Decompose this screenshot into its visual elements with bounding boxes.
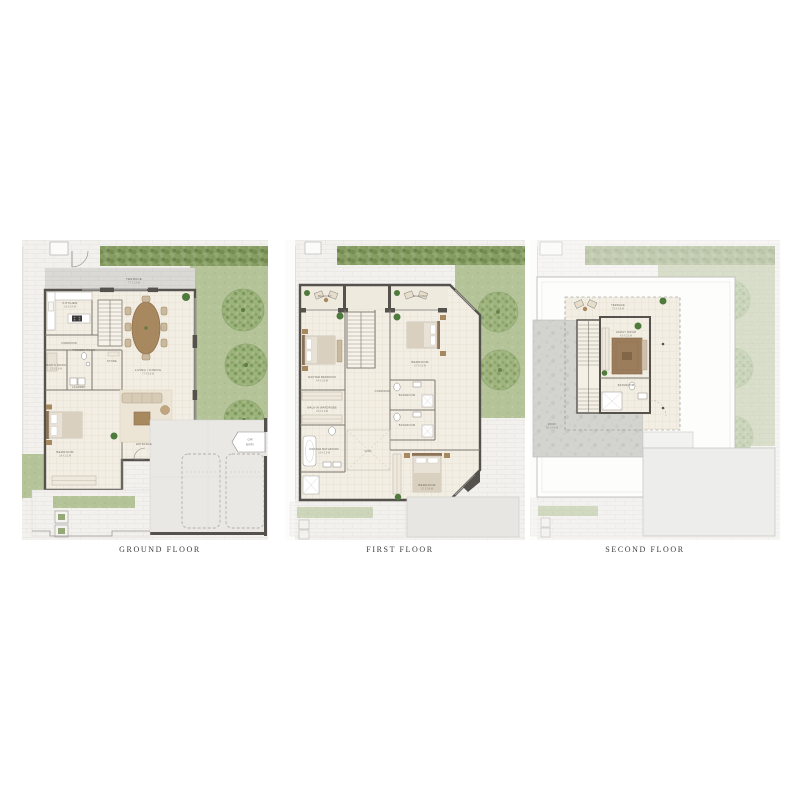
second-floor-caption: SECOND FLOOR	[545, 545, 745, 554]
basin	[323, 462, 331, 467]
nightstand	[444, 453, 450, 458]
first-floor-plan: BALCONY BALCONY MASTER BEDROOM 4.4 X 3.8…	[285, 240, 525, 540]
basin	[333, 462, 341, 467]
plant-icon	[394, 290, 400, 296]
bathtub	[303, 436, 316, 466]
plant-icon	[111, 433, 118, 440]
ground-level-ghost	[290, 502, 405, 539]
basin	[86, 362, 90, 366]
dryer	[78, 378, 85, 385]
sofa	[642, 340, 647, 370]
room-label-bathroom: BATHROOM	[618, 383, 634, 387]
room-dim-master-bedroom: 4.4 X 3.8 M	[316, 380, 328, 382]
room-label-roof: ROOF	[548, 422, 557, 426]
room-dim-roof: 6.2 X 4.0 M	[546, 427, 558, 429]
room-label-bath1: BATHROOM	[399, 393, 415, 397]
boundary-wall	[264, 418, 267, 432]
room-label-terrace: TERRACE	[126, 277, 142, 281]
basin	[638, 393, 647, 399]
car-entry-line1: CAR	[247, 439, 252, 442]
nightstand	[46, 405, 52, 410]
room-label-terrace: TERRACE	[611, 303, 625, 307]
ground-floor-plan: CAR ENTRY TERRACE 7.7 X 2.0 M KITCHEN 3.…	[22, 240, 268, 540]
room-label-family: FAMILY ROOM	[616, 330, 636, 334]
room-label-master-bedroom: MASTER BEDROOM	[308, 375, 336, 379]
room-dim-wardrobe: 2.6 X 1.9 M	[316, 411, 328, 413]
staircase	[577, 320, 600, 413]
room-label-bath2: BATHROOM	[399, 423, 415, 427]
room-dim-terrace: 7.7 X 2.0 M	[128, 283, 140, 285]
room-dim-bedroom3: 3.7 X 3.4 M	[421, 489, 433, 491]
plant-icon	[602, 370, 608, 376]
plant-icon	[635, 323, 642, 330]
second-floor-panel: TERRACE 7.0 X 4.6 M FAMILY ROOM 4.0 X 3.…	[530, 240, 780, 540]
room-label-powder: POWDER ROOM	[73, 348, 96, 352]
boundary-wall	[264, 456, 267, 536]
plant-icon	[394, 314, 401, 321]
coffee-table	[134, 412, 150, 425]
room-label-store: STORE	[107, 359, 117, 363]
room-label-balcony-right: BALCONY	[413, 294, 427, 298]
room-dim-maid: 2.3 X 1.8 M	[50, 368, 62, 370]
plant-icon	[395, 494, 401, 500]
room-label-laundry: LAUNDRY	[72, 385, 86, 389]
room-label-kitchen: KITCHEN	[63, 301, 78, 305]
room-dim-master-bath: 2.9 X 1.9 M	[318, 452, 330, 454]
front-walkway	[32, 490, 150, 537]
boundary-wall	[150, 532, 267, 535]
hedge-row	[585, 246, 775, 265]
nightstand	[302, 366, 308, 371]
car-entry-callout: CAR ENTRY	[232, 432, 265, 452]
room-label-bedroom3: BEDROOM	[418, 483, 436, 487]
room-dim-family: 4.0 X 3.3 M	[620, 335, 632, 337]
bench	[337, 340, 342, 362]
right-lower-roofs	[643, 432, 775, 536]
drain	[662, 343, 665, 346]
room-dim-bedroom: 3.6 X 3.2 M	[59, 456, 71, 458]
nightstand	[302, 329, 308, 334]
shelf	[108, 352, 119, 356]
floorplan-sheet: CAR ENTRY TERRACE 7.7 X 2.0 M KITCHEN 3.…	[0, 0, 800, 800]
ground-floor-panel: CAR ENTRY TERRACE 7.7 X 2.0 M KITCHEN 3.…	[22, 240, 268, 540]
room-label-bedroom: BEDROOM	[56, 450, 74, 454]
hedge-row	[337, 246, 525, 265]
room-label-void: VOID	[364, 449, 371, 453]
tree-icon	[225, 344, 267, 386]
plant-icon	[182, 293, 190, 301]
room-label-entrance: ENTRANCE	[136, 442, 152, 446]
room-label-balcony-left: BALCONY	[318, 294, 332, 298]
room-dim-kitchen: 3.6 X 3.0 M	[64, 307, 76, 309]
room-dim-bedroom2: 3.7 X 3.3 M	[414, 366, 426, 368]
entry-pad	[50, 242, 68, 255]
room-label-wardrobe: WALK-IN WARDROBE	[307, 406, 337, 410]
room-label-corridor: CORRIDOR	[61, 341, 77, 345]
table	[622, 352, 632, 360]
room-label-bedroom2: BEDROOM	[411, 360, 429, 364]
armchair	[161, 406, 170, 415]
nightstand	[404, 453, 410, 458]
room-dim-terrace: 7.0 X 4.6 M	[612, 308, 624, 310]
room-label-maid: MAID'S ROOM	[46, 363, 66, 367]
drain	[662, 407, 665, 410]
planting-strip	[53, 496, 135, 508]
tree-icon	[480, 350, 520, 390]
nightstand	[46, 440, 52, 445]
hedge-row	[100, 246, 268, 266]
bed-headboard	[46, 411, 49, 439]
tree-icon	[478, 292, 518, 332]
sink	[49, 302, 54, 311]
first-floor-panel: BALCONY BALCONY MASTER BEDROOM 4.4 X 3.8…	[285, 240, 525, 540]
garage-roof	[407, 497, 519, 537]
car-entry-line2: ENTRY	[246, 444, 254, 447]
toilet	[81, 353, 86, 360]
nightstand	[440, 315, 446, 320]
ground-floor-caption: GROUND FLOOR	[60, 545, 260, 554]
side-table	[583, 307, 587, 311]
plant-icon	[337, 313, 344, 320]
plant-icon	[660, 298, 667, 305]
tree-icon	[222, 289, 264, 331]
side-table	[324, 298, 328, 302]
room-label-living-dining: LIVING / DINING	[135, 368, 162, 372]
room-dim-living-dining: 7.7 X 5.5 M	[142, 374, 154, 376]
staircase	[347, 312, 375, 368]
washer	[70, 378, 77, 385]
staircase	[98, 300, 122, 346]
room-label-corridor: CORRIDOR	[375, 389, 391, 393]
toilet	[329, 427, 336, 435]
nightstand	[440, 351, 446, 356]
ground-level-ghost	[530, 498, 643, 537]
cooktop	[72, 316, 82, 322]
plant-icon	[304, 290, 310, 296]
room-label-master-bath: MASTER BATHROOM	[309, 447, 338, 451]
second-floor-plan: TERRACE 7.0 X 4.6 M FAMILY ROOM 4.0 X 3.…	[530, 240, 780, 540]
first-floor-caption: FIRST FLOOR	[300, 545, 500, 554]
